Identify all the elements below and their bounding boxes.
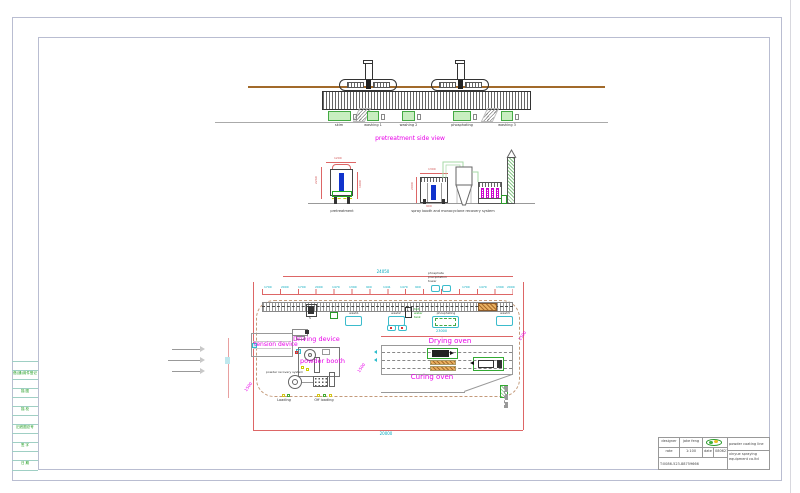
driving-device-label: Driving device	[293, 336, 340, 343]
tick-dim: 900	[415, 286, 421, 289]
logo-leaf-yellow	[714, 440, 718, 443]
product-cell: powder coating line	[727, 437, 770, 451]
tick-dim: 900	[366, 286, 372, 289]
curing-oven-label: Curing oven	[402, 374, 462, 382]
fan-unit	[366, 80, 371, 89]
green-detail	[330, 312, 338, 319]
flow-arrow	[172, 349, 202, 350]
burner-arrow	[470, 361, 474, 365]
pump-icon	[515, 114, 519, 120]
company-cell: xinyue spraying equipment co.ltd	[727, 450, 770, 470]
yellow-marker	[301, 366, 304, 369]
phone-cell: T:0086-523-88759666	[658, 457, 728, 470]
flow-arrow-head	[200, 368, 205, 374]
dim-ticks	[262, 289, 513, 295]
filter-box	[347, 82, 364, 88]
filter-box	[373, 82, 390, 88]
tick-dim: 1700	[264, 286, 272, 289]
plan-tank-label: wash2	[386, 312, 406, 315]
yellow-marker	[282, 394, 285, 397]
tick-dim: 1441	[383, 286, 391, 289]
conveyor-direction	[374, 350, 377, 354]
tick-dim: 1700	[462, 286, 470, 289]
plan-tank-label: phosphating	[432, 312, 460, 315]
recovery-duct	[302, 382, 313, 383]
loading-label: Loading	[274, 399, 294, 403]
heater-bank	[430, 366, 456, 371]
tank-label: washing 1	[359, 124, 387, 128]
flow-arrow	[172, 371, 202, 372]
yellow-marker	[306, 368, 309, 371]
filter-top	[479, 183, 501, 187]
workpiece	[339, 173, 344, 192]
conveyor-direction	[374, 358, 377, 362]
burner-end	[497, 360, 502, 368]
leg	[334, 197, 337, 204]
monorail-line	[248, 86, 605, 88]
tick-dim: 2000	[315, 286, 323, 289]
plan-tank-label: wash3	[495, 312, 515, 315]
tank-phosphating	[453, 111, 471, 121]
dim-line-top	[283, 276, 513, 277]
side-view-title: pretreatment side view	[370, 136, 450, 143]
tank-label: skim	[327, 124, 351, 128]
dim-text: 1200	[334, 157, 342, 160]
oven-dim: 23000	[436, 330, 447, 334]
elevation-left-label: pretreatment	[322, 210, 362, 214]
unit-dot	[401, 327, 403, 329]
dim-total-bottom: 20000	[373, 432, 399, 436]
pump-s-symbol: S	[407, 310, 409, 313]
yellow-marker	[329, 394, 332, 397]
green-marker	[287, 394, 290, 397]
drying-oven-label: Drying oven	[420, 338, 480, 346]
conveyor-centerline	[262, 306, 513, 307]
tank-label: washing 3	[493, 124, 521, 128]
tick-dim: 2000	[281, 286, 289, 289]
recovery-tube	[329, 372, 335, 387]
oven-lower-edge	[381, 392, 465, 393]
pump-icon	[353, 114, 357, 120]
burner-arrow	[450, 351, 454, 355]
pump-icon	[381, 114, 385, 120]
exit-path	[504, 386, 508, 408]
tick-dim: 1700	[298, 286, 306, 289]
plan-tank	[345, 316, 362, 326]
dim-text: 1900	[359, 180, 362, 188]
final-filter-plan	[313, 376, 328, 387]
flow-arrow-head	[200, 357, 205, 363]
drive-motor	[305, 330, 309, 334]
tick-dim: 1470	[479, 286, 487, 289]
tick-dim: 1470	[332, 286, 340, 289]
tank-washing2	[402, 111, 415, 121]
tank-washing3	[501, 111, 513, 121]
pump-icon	[473, 114, 477, 120]
phosphating-coil	[435, 318, 456, 326]
dim-line-right	[523, 282, 524, 430]
dim-line	[326, 162, 356, 163]
powder-recovery-label: powder recovery system	[266, 371, 303, 374]
yellow-marker	[317, 394, 320, 397]
cyclone-inner	[292, 379, 298, 385]
fan-unit	[458, 80, 463, 89]
leg	[347, 197, 350, 204]
drive-motor	[308, 306, 314, 314]
page-right-edge	[790, 0, 791, 493]
tick-dim: 1390	[349, 286, 357, 289]
booth-detail	[322, 349, 330, 355]
burner-body	[478, 360, 494, 368]
red-marker	[295, 351, 298, 354]
burner-body	[432, 350, 449, 357]
pump-s-symbol: S	[309, 317, 311, 320]
plan-tank-label: wash1	[344, 312, 364, 315]
stack-cap	[363, 60, 373, 64]
filter-box	[439, 82, 456, 88]
elevation-right-label: spray booth and monocyclone recovery sys…	[408, 210, 498, 214]
tick-dim: 2000	[507, 286, 515, 289]
oven-pass-section	[478, 303, 497, 311]
dim-total-top: 24050	[370, 270, 396, 274]
heater-bank	[430, 360, 456, 365]
cad-drawing-sheet: { "frame": { "margin_cells": ["借(通)用件登记"…	[0, 0, 800, 493]
tick-dim: 1470	[400, 286, 408, 289]
match-line	[228, 338, 229, 398]
dim-text: 2260	[315, 176, 318, 184]
tower-note: tower	[428, 280, 437, 283]
stack-cap	[455, 60, 465, 64]
filter-box	[465, 82, 482, 88]
pump-icon	[417, 114, 421, 120]
exhaust-stack	[365, 63, 373, 79]
match-marker	[225, 357, 230, 364]
tower-plan	[431, 285, 440, 292]
tank-skim	[328, 111, 351, 121]
exhaust-stack	[457, 63, 465, 79]
tower-plan	[442, 285, 451, 292]
filter-base-line	[478, 198, 502, 199]
tank-label: washing 2	[394, 124, 423, 128]
green-marker	[323, 394, 326, 397]
unit-dot	[390, 327, 392, 329]
dim-text: 2000	[411, 182, 414, 190]
plan-tank	[496, 316, 513, 326]
powder-booth-label: powder booth	[300, 358, 345, 365]
flow-arrow	[168, 360, 202, 361]
tension-device-label: tension device	[254, 342, 298, 349]
dim-line	[321, 167, 322, 199]
tank-washing1	[367, 111, 379, 121]
tank-label: phosphating	[448, 124, 476, 128]
offloading-label: Off loading	[310, 399, 338, 403]
flow-arrow-head	[200, 346, 205, 352]
hot-water-note: tank	[414, 316, 421, 319]
exhaust-stack-tall	[507, 157, 515, 204]
tick-dim: 1390	[496, 286, 504, 289]
pretreat-line-plan	[262, 302, 513, 312]
logo-leaf-green	[709, 441, 713, 444]
